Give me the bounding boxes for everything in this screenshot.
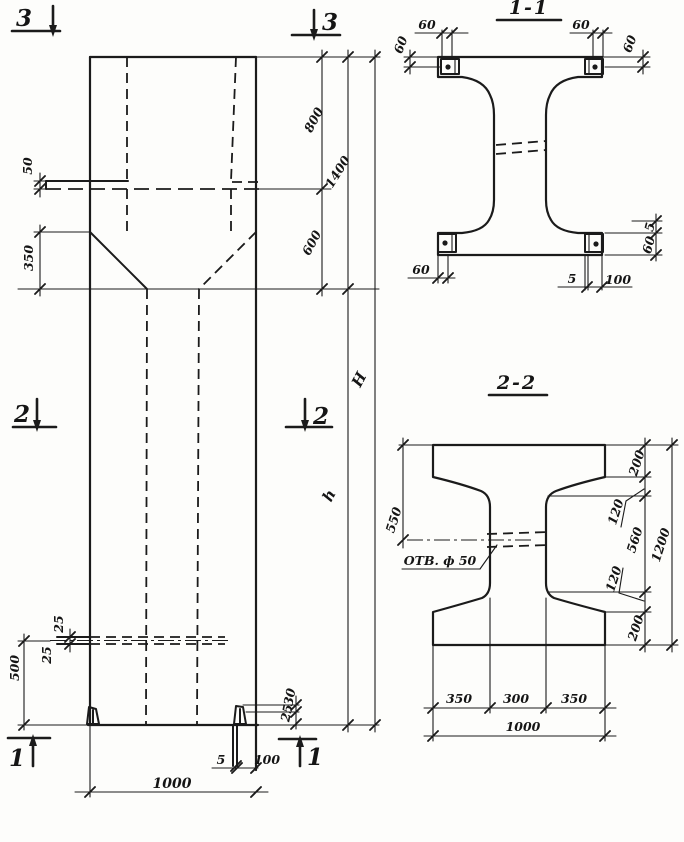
dim-haunch-zone-600: 600 [299, 227, 325, 257]
section-2-2-dimensions: 550 200 120 560 120 200 [382, 438, 678, 741]
dim-2-2-right-200-top: 200 [625, 448, 648, 479]
dim-cap-800: 800 [301, 104, 327, 134]
column-outline [46, 57, 258, 770]
dim-1-1-bottom-left-w: 60 [412, 262, 430, 277]
dim-2-2-bottom-300: 300 [503, 691, 529, 706]
base-bracket-dimensions: 30 25 [277, 687, 301, 729]
marker-1-left: 1 [8, 734, 50, 772]
section-2-2-title: 2-2 [496, 372, 537, 394]
dim-2-2-bottom-350-right: 350 [561, 691, 587, 706]
dim-hole-25-top: 25 [51, 615, 66, 633]
anchor-dot [445, 64, 450, 69]
technical-drawing-canvas: 50 350 25 25 500 30 25 [0, 0, 684, 842]
marker-3-left-label: 3 [16, 5, 32, 32]
marker-1-right: 1 [279, 735, 323, 771]
hidden-lines [46, 57, 262, 724]
arrow-up-icon [29, 734, 37, 746]
dim-plate-100: 100 [254, 752, 280, 767]
dim-shaft-h: h [319, 486, 340, 504]
dim-1-1-right-h: 60 [639, 234, 658, 255]
bottom-width-dimension: 1000 [75, 725, 268, 797]
marker-2-right: 2 [286, 399, 332, 432]
dim-1-1-top-right-h: 60 [620, 33, 640, 55]
section-markers: 3 3 2 2 [8, 5, 340, 772]
dim-haunch-350: 350 [21, 245, 36, 271]
embedded-plates [438, 59, 603, 252]
marker-1-left-label: 1 [9, 745, 25, 772]
dim-plate-5: 5 [217, 752, 226, 767]
section-1-1-dimensions: 60 60 60 60 [391, 17, 662, 292]
section-2-2-hole: ОТВ. ф 50 [402, 532, 549, 569]
anchor-dot [442, 240, 447, 245]
dim-2-2-right-560: 560 [623, 525, 645, 555]
dim-1-1-top-right-w: 60 [572, 17, 590, 32]
section-2-2-view: 2-2 ОТВ. ф 50 550 [382, 372, 678, 741]
marker-3-right: 3 [292, 9, 340, 41]
section-1-1-outline [438, 57, 602, 255]
dim-hole-elevation-500: 500 [7, 655, 22, 681]
elevation-view: 50 350 25 25 500 30 25 [7, 5, 380, 797]
marker-2-left-label: 2 [13, 401, 30, 428]
dim-1-1-top-left-w: 60 [418, 17, 436, 32]
dim-foot-25: 25 [277, 703, 295, 724]
marker-1-right-label: 1 [307, 744, 323, 771]
section-2-2-outline [433, 445, 605, 645]
hole-diameter-label: ОТВ. ф 50 [404, 553, 477, 568]
dim-ledge-50: 50 [20, 157, 35, 175]
anchor-dot [592, 64, 597, 69]
anchor-dot [593, 241, 598, 246]
dim-width-1000: 1000 [153, 776, 192, 792]
dim-2-2-bottom-1000: 1000 [506, 719, 541, 734]
marker-2-left: 2 [13, 399, 56, 432]
drawing-sheet: 50 350 25 25 500 30 25 [0, 0, 684, 842]
dim-1-1-bottom-thk: 5 [568, 271, 577, 286]
marker-3-left: 3 [12, 5, 60, 37]
dim-hole-25-bottom: 25 [39, 646, 54, 664]
dim-2-2-bottom-350-left: 350 [446, 691, 472, 706]
section-1-1-title: 1-1 [509, 0, 549, 19]
arrow-up-icon [296, 735, 304, 747]
dim-2-2-right-200-bottom: 200 [624, 613, 647, 644]
base-hole-lines [50, 637, 230, 644]
dim-2-2-left-550: 550 [382, 505, 404, 535]
dim-2-2-right-1200: 1200 [648, 526, 673, 564]
base-plate-dimensions: 5 100 [212, 752, 280, 773]
dim-1-1-bottom-w: 100 [605, 272, 631, 287]
dim-total-H: H [347, 368, 370, 391]
section-1-1-view: 1-1 60 [391, 0, 662, 292]
dim-cap-total-1400: 1400 [322, 153, 353, 191]
marker-3-right-label: 3 [322, 9, 338, 36]
dim-1-1-top-left-h: 60 [391, 34, 411, 56]
